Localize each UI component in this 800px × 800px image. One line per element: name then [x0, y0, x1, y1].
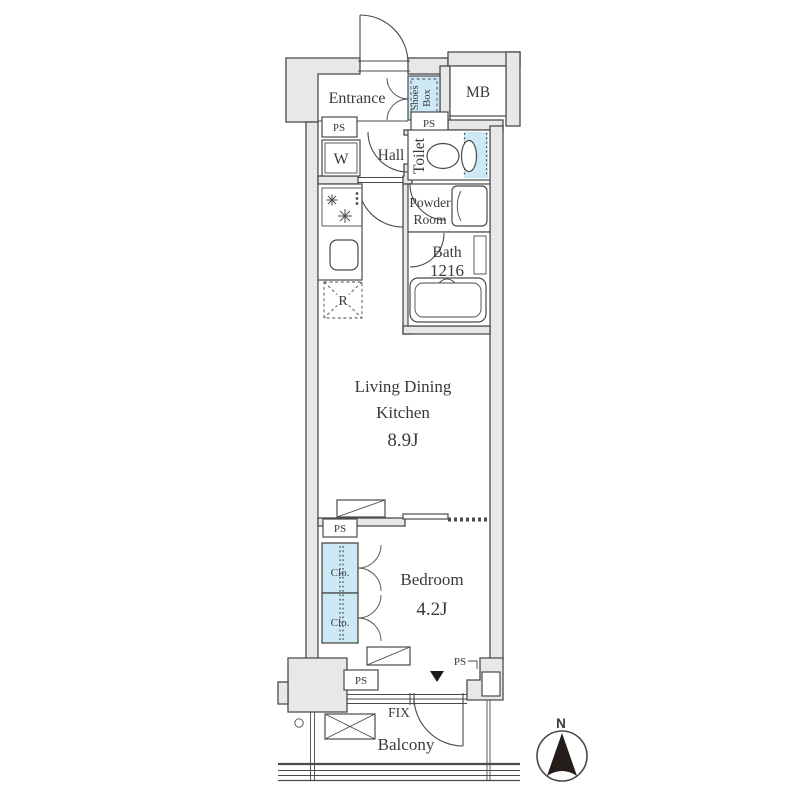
compass: N	[537, 716, 587, 781]
ldk-size-label: 8.9J	[387, 430, 418, 451]
closet-door-arc	[358, 568, 381, 591]
kitchen: R	[318, 184, 362, 318]
ldk-label-1: Living Dining	[355, 377, 452, 396]
toilet-label: Toilet	[411, 137, 428, 174]
balcony-drain	[295, 719, 303, 727]
balcony-label: Balcony	[378, 735, 435, 754]
toilet-tank	[462, 141, 477, 172]
bath-label-1: Bath	[432, 244, 462, 261]
bedroom-label: Bedroom	[400, 570, 463, 589]
shoes-box-label-2: Box	[422, 89, 433, 107]
closet-door-arc	[358, 545, 381, 568]
kitchen-sink	[330, 240, 358, 270]
stove-knob-dot	[356, 197, 359, 200]
wall-hall-bottom	[318, 176, 358, 184]
ps-label: PS	[333, 122, 345, 134]
washer-label: W	[333, 151, 349, 168]
wall-mb-right	[506, 52, 520, 126]
toilet-room: Toilet	[408, 130, 490, 180]
compass-north-needle	[547, 733, 577, 776]
bedroom: Bedroom 4.2J PS PS	[344, 570, 500, 696]
powder-room: Powder Room	[408, 184, 490, 232]
ps-label: PS	[423, 118, 435, 130]
sliding-door-panel	[403, 514, 448, 519]
wall-column-tab	[278, 682, 288, 704]
compass-north-label: N	[556, 716, 566, 731]
ps-shaft-bottom-right	[482, 672, 500, 696]
stove-knob-dot	[356, 192, 359, 195]
sliding-door-partition: PS	[323, 500, 490, 537]
shoes-box-door-arc-bottom	[387, 99, 408, 120]
toilet-bowl	[427, 144, 459, 169]
entrance-door-arc	[360, 15, 408, 63]
ps-pointer-line	[468, 661, 477, 669]
wall-bath-bottom	[403, 326, 490, 334]
closet-label: Clo.	[331, 617, 350, 629]
hall: Hall	[358, 132, 408, 227]
wall-bottom-left-column	[288, 658, 347, 712]
fix-window-label: FIX	[388, 705, 410, 720]
ps-label: PS	[355, 675, 367, 687]
wall-right-main	[490, 126, 503, 660]
closet-door-arc	[358, 618, 381, 641]
stove-burner-icon	[327, 195, 338, 206]
living-dining-kitchen: Living Dining Kitchen 8.9J	[355, 377, 452, 451]
shoes-box-door-arc-top	[387, 78, 408, 99]
stove-burner-icon	[338, 209, 352, 223]
meter-box-label: MB	[466, 84, 490, 101]
powder-room-label-1: Powder	[409, 195, 451, 210]
ldk-label-2: Kitchen	[376, 403, 430, 422]
floor-plan-canvas: Entrance Shoes Box MB PS PS W Hall	[0, 0, 800, 800]
entry-direction-triangle	[430, 671, 444, 682]
closet-door-arc	[358, 595, 381, 618]
powder-room-label-2: Room	[413, 212, 447, 227]
entrance-label: Entrance	[329, 90, 386, 107]
refrigerator-space: R	[324, 282, 362, 318]
floor-plan: Entrance Shoes Box MB PS PS W Hall	[0, 0, 800, 800]
ps-label: PS	[334, 523, 346, 535]
ldk-door-arc	[358, 182, 403, 227]
stove-knob-dot	[356, 202, 359, 205]
wall-left-main	[306, 122, 318, 662]
bathtub-outer	[410, 278, 486, 322]
bedroom-size-label: 4.2J	[416, 599, 447, 620]
ps-label: PS	[454, 656, 466, 668]
bath-room: Bath 1216	[408, 232, 490, 326]
refrigerator-label: R	[338, 294, 348, 309]
closets: Clo. Clo.	[322, 543, 381, 643]
closet-label: Clo.	[331, 567, 350, 579]
meter-box: MB	[450, 66, 506, 116]
bath-label-2: 1216	[430, 261, 464, 280]
shoes-box-label-1: Shoes	[410, 85, 421, 110]
